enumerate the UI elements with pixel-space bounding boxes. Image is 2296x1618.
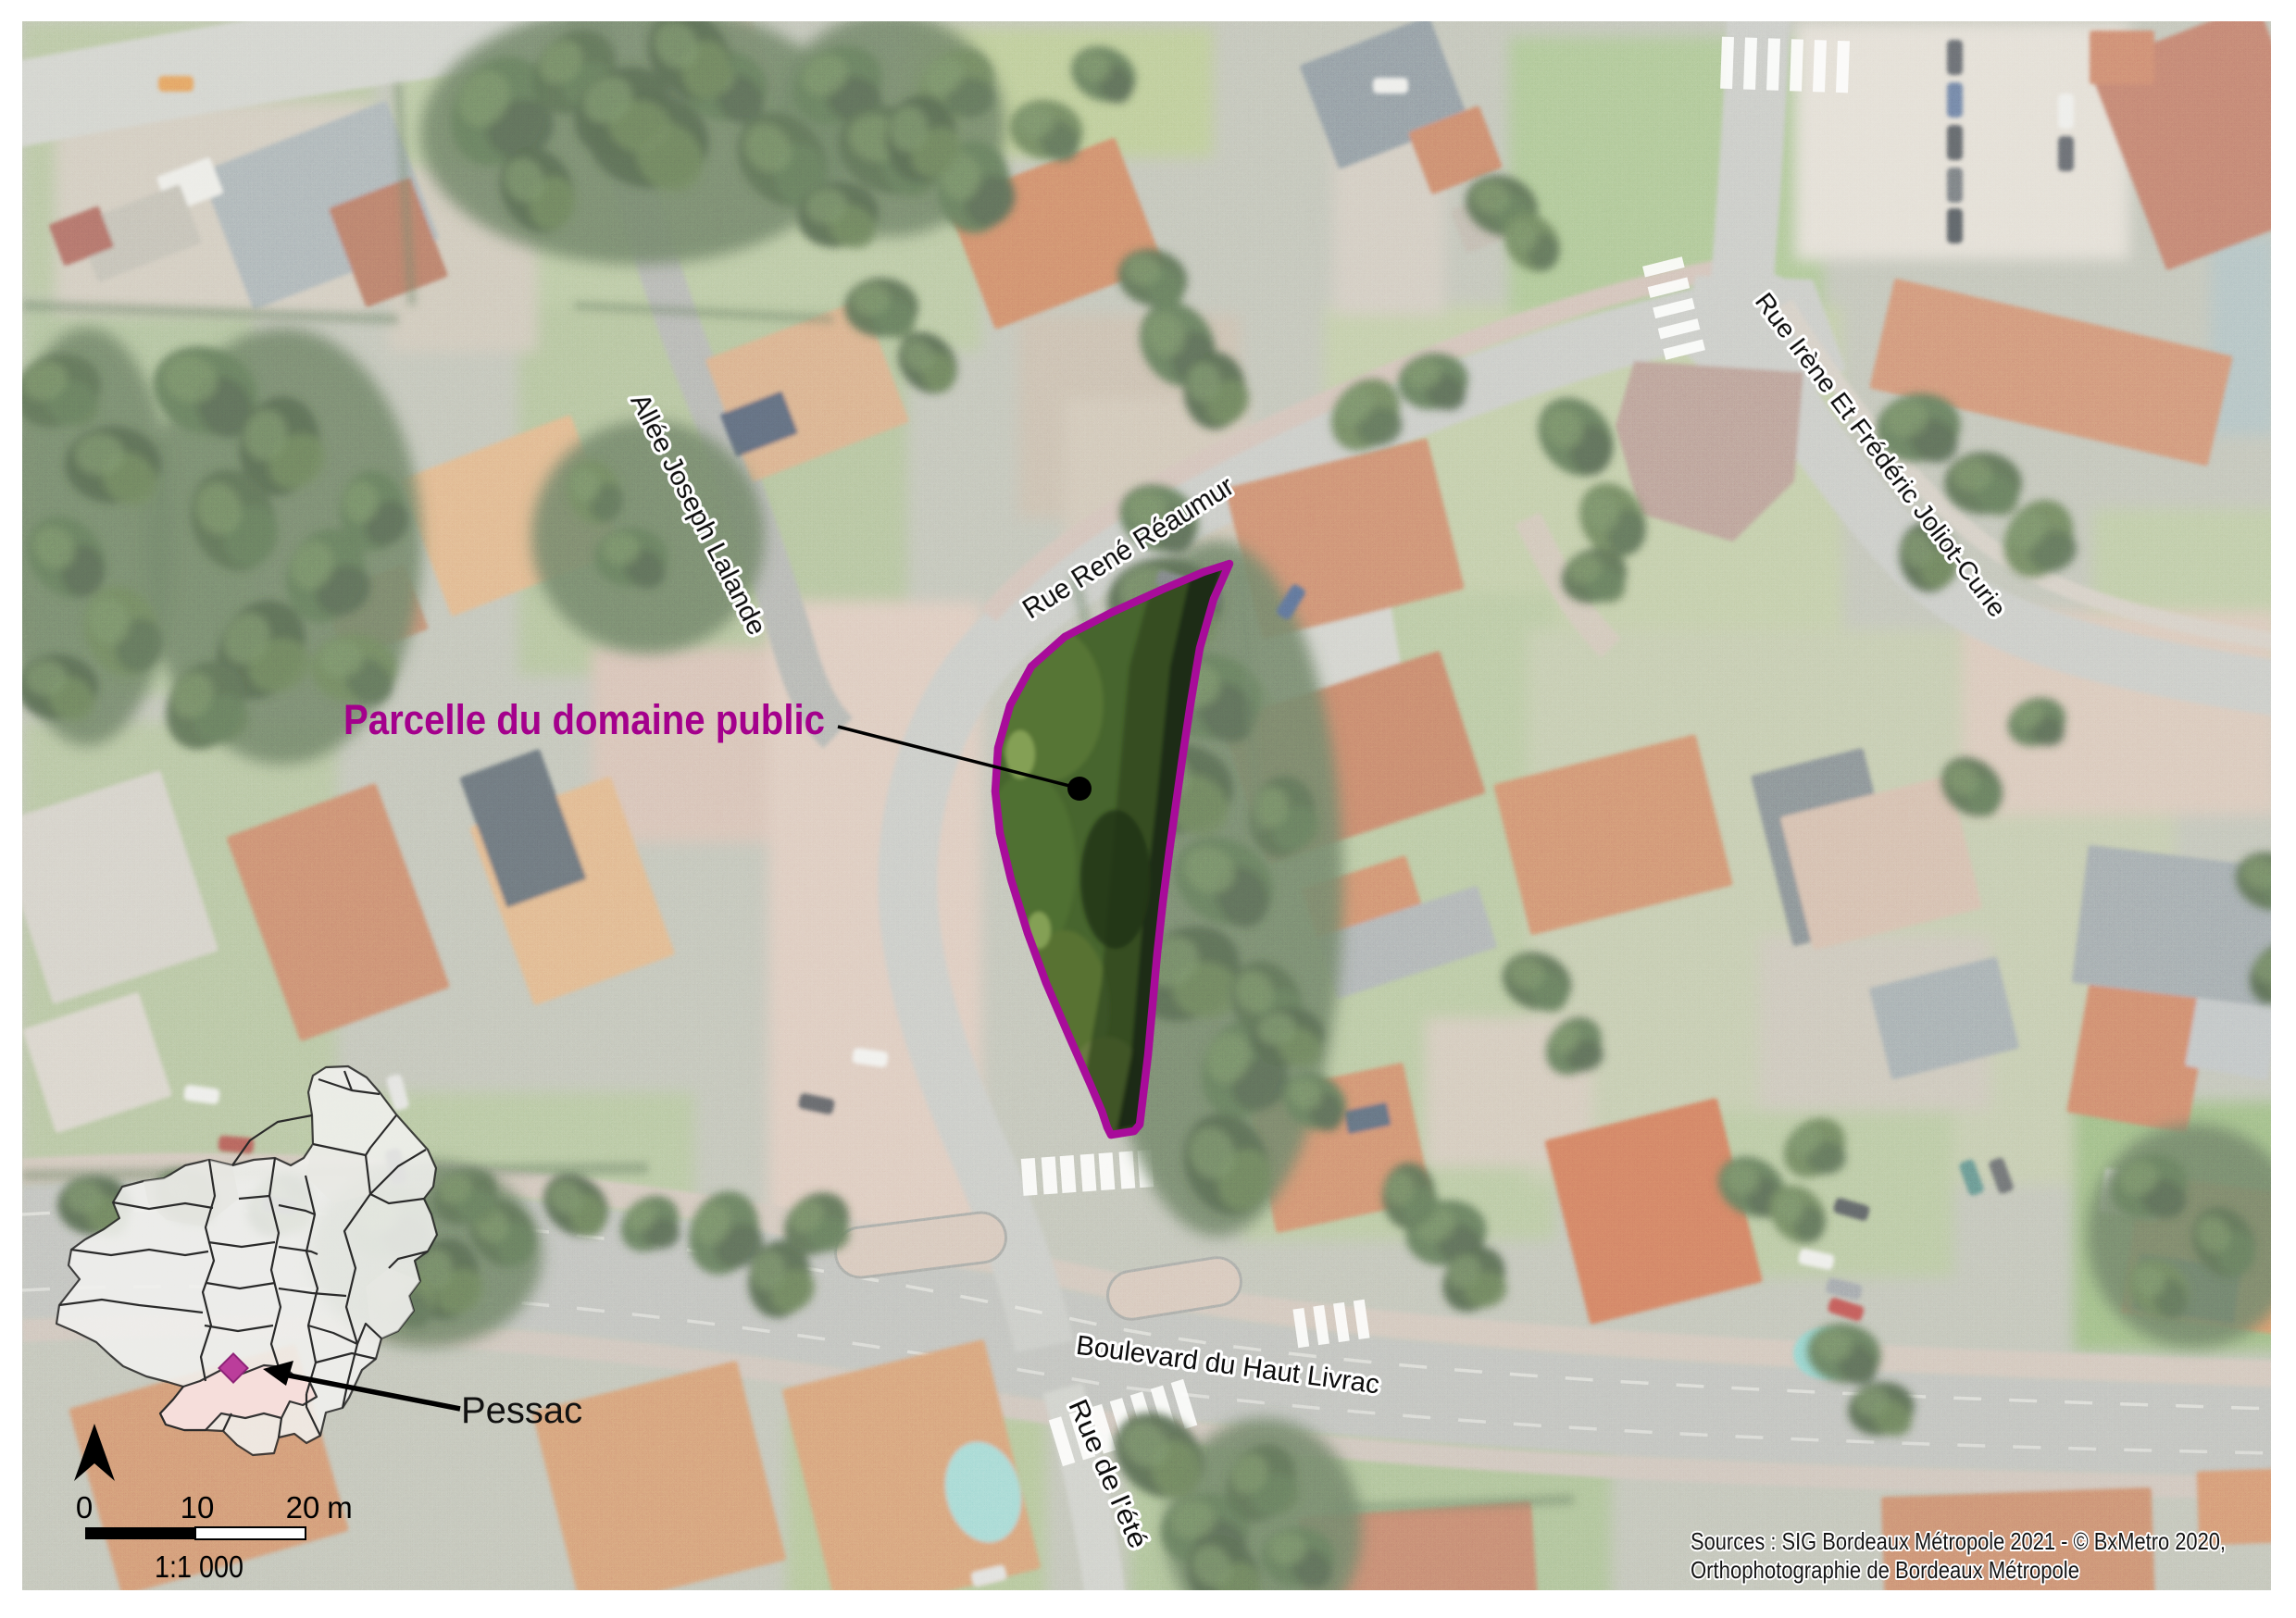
svg-text:10: 10 — [181, 1490, 215, 1525]
svg-text:Parcelle du domaine public: Parcelle du domaine public — [343, 696, 825, 743]
svg-text:Pessac: Pessac — [461, 1390, 582, 1431]
svg-text:20: 20 — [286, 1490, 320, 1525]
svg-text:Sources : SIG Bordeaux Métropo: Sources : SIG Bordeaux Métropole 2021 - … — [1691, 1527, 2226, 1555]
svg-text:1:1 000: 1:1 000 — [155, 1550, 243, 1584]
svg-text:m: m — [327, 1490, 353, 1525]
svg-text:Orthophotographie de Bordeaux: Orthophotographie de Bordeaux Métropole — [1691, 1556, 2079, 1584]
svg-text:0: 0 — [76, 1490, 93, 1525]
